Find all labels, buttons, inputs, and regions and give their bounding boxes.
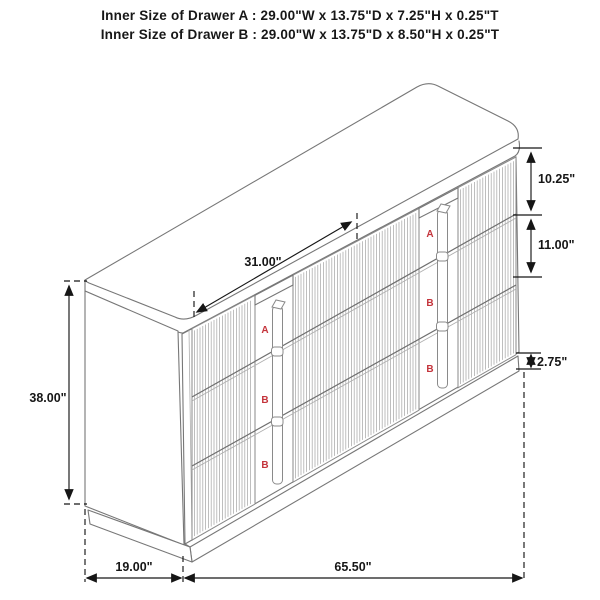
dimension-diagram: A B B A B B 31.00" 10.25" 11.00" [0,0,600,600]
cabinet-left-side [85,291,184,545]
door-left [192,295,255,540]
dim-depth-label: 19.00" [115,560,152,574]
dim-base-height: 2.75" [516,353,567,369]
title-block: Inner Size of Drawer A : 29.00"W x 13.75… [0,7,600,44]
drawer-label-right-b1: B [426,298,433,309]
title-line-drawer-a: Inner Size of Drawer A : 29.00"W x 13.75… [0,7,600,26]
dim-drawer-b-label: 11.00" [538,238,575,252]
title-line-drawer-b: Inner Size of Drawer B : 29.00"W x 13.75… [0,26,600,45]
drawer-label-left-b2: B [261,460,268,471]
dim-drawer-heights: 10.25" 11.00" [513,148,575,277]
drawer-label-left-a: A [261,325,268,336]
dim-width-label: 65.50" [334,560,371,574]
handle-left [272,300,286,484]
drawer-label-right-b2: B [426,364,433,375]
dim-base-height-label: 2.75" [537,355,567,369]
sideboard-drawing: A B B A B B 31.00" 10.25" 11.00" [0,0,600,600]
drawer-label-left-b1: B [261,395,268,406]
handle-right [437,204,451,388]
door-right [458,157,516,388]
drawer-label-right-a: A [426,229,433,240]
dim-overall-height-label: 38.00" [29,391,66,405]
dim-overall-height: 38.00" [29,281,87,504]
dim-door-width-label: 31.00" [244,255,281,269]
dim-drawer-a-label: 10.25" [538,172,575,186]
